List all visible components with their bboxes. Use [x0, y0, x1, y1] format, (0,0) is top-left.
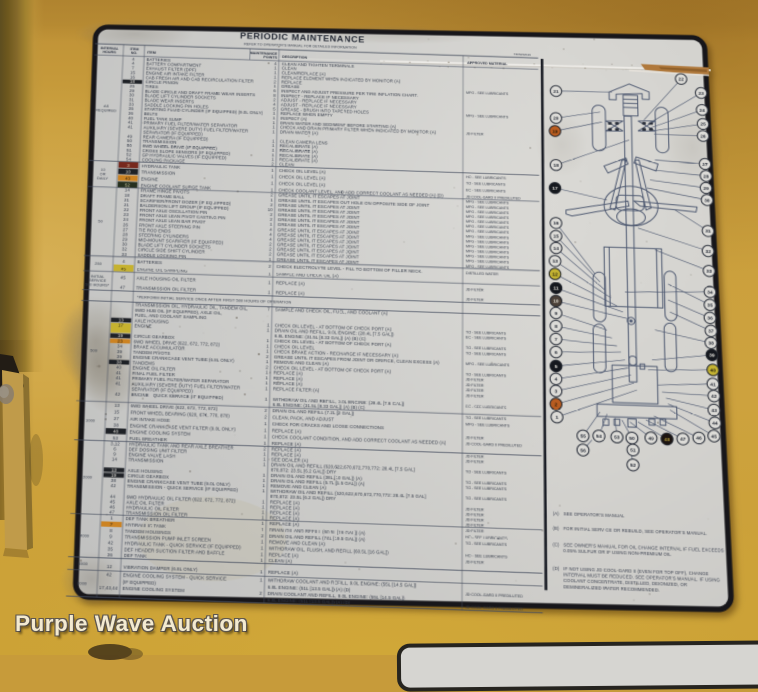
svg-text:1: 1	[268, 271, 271, 276]
svg-text:42: 42	[711, 393, 717, 399]
svg-text:28: 28	[703, 174, 709, 179]
svg-text:DRAIN WATER (A): DRAIN WATER (A)	[280, 129, 319, 135]
svg-text:TO - SEE LUBRICANTS: TO - SEE LUBRICANTS	[466, 416, 508, 422]
svg-text:1: 1	[267, 328, 270, 333]
svg-text:32: 32	[705, 249, 711, 254]
svg-text:CLEAN (A): CLEAN (A)	[268, 558, 292, 564]
svg-text:ENGINE - QUICK SERVICE (IF EQU: ENGINE - QUICK SERVICE (IF EQUIPPED)	[131, 392, 224, 401]
svg-text:1000: 1000	[86, 419, 95, 424]
svg-text:500 HOURS*: 500 HOURS*	[85, 283, 110, 288]
svg-text:1: 1	[261, 539, 264, 545]
svg-text:38: 38	[113, 422, 119, 428]
svg-text:5: 5	[555, 364, 558, 369]
svg-text:23: 23	[698, 91, 704, 96]
svg-text:TO - SEE LUBRICANTS: TO - SEE LUBRICANTS	[466, 182, 506, 187]
svg-text:(A): (A)	[553, 510, 560, 516]
svg-text:2: 2	[268, 263, 271, 268]
svg-text:1: 1	[260, 558, 263, 564]
svg-text:33: 33	[706, 269, 712, 274]
svg-text:13: 13	[552, 259, 558, 264]
svg-text:26: 26	[700, 134, 706, 139]
svg-text:APPROVED MATERIAL: APPROVED MATERIAL	[467, 61, 508, 66]
svg-text:36: 36	[707, 315, 713, 320]
svg-text:22: 22	[678, 77, 684, 82]
svg-text:1: 1	[265, 396, 268, 401]
svg-text:JD FILTER: JD FILTER	[466, 383, 485, 388]
svg-text:14: 14	[553, 246, 559, 251]
svg-text:DEF TANK: DEF TANK	[124, 553, 147, 559]
svg-text:ENGINE COOLING SYSTEM: ENGINE COOLING SYSTEM	[122, 585, 185, 593]
svg-text:12: 12	[107, 564, 113, 570]
svg-text:49: 49	[648, 435, 654, 441]
svg-text:VIBRATION DAMPER (6.8L ONLY): VIBRATION DAMPER (6.8L ONLY)	[123, 564, 198, 572]
svg-text:10: 10	[553, 298, 559, 303]
svg-text:25: 25	[700, 122, 706, 127]
svg-text:1: 1	[261, 527, 264, 533]
svg-text:24: 24	[699, 108, 705, 113]
svg-text:SAMPLE AND CHECK OIL, FUEL, AN: SAMPLE AND CHECK OIL, FUEL, AND COOLANT …	[275, 307, 388, 316]
svg-text:(B): (B)	[553, 525, 560, 531]
svg-text:3: 3	[555, 389, 558, 394]
svg-text:45: 45	[121, 266, 127, 271]
svg-text:2: 2	[259, 590, 263, 596]
svg-text:JD FILTER: JD FILTER	[465, 560, 484, 565]
svg-text:(D): (D)	[553, 565, 560, 571]
svg-text:13: 13	[114, 403, 120, 409]
svg-text:31: 31	[705, 229, 711, 234]
svg-text:54: 54	[596, 433, 602, 439]
svg-text:JD FILTER: JD FILTER	[465, 454, 484, 459]
svg-text:17: 17	[118, 323, 124, 328]
svg-text:56: 56	[580, 447, 586, 453]
svg-text:15: 15	[114, 409, 120, 415]
svg-text:JD FILTER: JD FILTER	[465, 435, 484, 440]
svg-text:ITEM: ITEM	[147, 50, 156, 54]
svg-text:250: 250	[95, 262, 102, 266]
svg-text:1: 1	[261, 515, 264, 521]
svg-text:REPLACE (A): REPLACE (A)	[276, 280, 305, 286]
svg-text:JD FILTER: JD FILTER	[466, 393, 485, 398]
svg-text:16: 16	[553, 221, 559, 226]
svg-text:55: 55	[580, 433, 586, 439]
svg-text:9: 9	[555, 311, 558, 316]
svg-text:2: 2	[271, 161, 274, 166]
svg-text:SEE OPERATOR’S MANUAL: SEE OPERATOR’S MANUAL	[563, 511, 625, 519]
svg-text:12: 12	[552, 272, 558, 277]
svg-text:1: 1	[272, 129, 275, 134]
svg-text:2000: 2000	[83, 475, 92, 480]
svg-text:ENGINE: ENGINE	[141, 176, 159, 182]
svg-text:50: 50	[98, 220, 103, 224]
svg-text:37: 37	[708, 328, 714, 333]
svg-text:15: 15	[553, 234, 559, 239]
svg-text:40: 40	[710, 367, 716, 373]
svg-text:1: 1	[261, 545, 264, 551]
svg-text:2: 2	[264, 408, 267, 413]
svg-text:53: 53	[614, 434, 620, 440]
svg-text:42: 42	[115, 391, 121, 397]
svg-text:54: 54	[126, 157, 132, 162]
svg-text:T4DW32K19: T4DW32K19	[514, 52, 532, 56]
svg-text:1: 1	[261, 521, 264, 527]
svg-text:NO.: NO.	[131, 51, 138, 55]
svg-text:14: 14	[112, 456, 118, 462]
svg-text:47: 47	[109, 509, 115, 515]
svg-text:TO - SEE LUBRICANTS: TO - SEE LUBRICANTS	[465, 486, 507, 492]
svg-text:ENGINE: ENGINE	[134, 323, 152, 329]
svg-text:REPLACE FILTER (A): REPLACE FILTER (A)	[273, 386, 320, 393]
svg-text:BATTERIES: BATTERIES	[137, 259, 162, 265]
svg-text:JD FILTER: JD FILTER	[466, 388, 485, 393]
svg-text:43: 43	[125, 176, 131, 181]
svg-text:JD FILTER: JD FILTER	[465, 459, 484, 464]
svg-text:27: 27	[702, 162, 708, 167]
svg-text:1: 1	[260, 577, 264, 583]
svg-text:TO - SEE LUBRICANTS: TO - SEE LUBRICANTS	[465, 496, 507, 502]
svg-text:6: 6	[555, 350, 558, 355]
svg-text:MPG - SEE LUBRICANTS: MPG - SEE LUBRICANTS	[466, 114, 509, 119]
svg-text:51: 51	[630, 447, 636, 453]
svg-text:50: 50	[629, 435, 635, 441]
svg-text:DAILY: DAILY	[97, 176, 109, 180]
svg-text:10: 10	[125, 169, 131, 174]
svg-text:30: 30	[704, 198, 710, 203]
svg-text:2: 2	[261, 533, 264, 539]
svg-text:42: 42	[108, 540, 114, 546]
svg-text:TO - SEE LUBRICANTS: TO - SEE LUBRICANTS	[466, 351, 507, 357]
svg-text:8: 8	[555, 324, 558, 329]
svg-text:EO - SEE LUBRICANTS: EO - SEE LUBRICANTS	[466, 188, 507, 193]
svg-text:1: 1	[260, 551, 263, 557]
svg-text:JD FILTER: JD FILTER	[466, 297, 485, 302]
svg-text:(C): (C)	[553, 541, 560, 547]
svg-text:1: 1	[271, 168, 274, 173]
svg-text:47: 47	[120, 285, 126, 290]
svg-text:1: 1	[262, 488, 265, 494]
svg-text:JD COOL-GARD II PREDILUTED: JD COOL-GARD II PREDILUTED	[465, 592, 523, 599]
svg-text:1: 1	[264, 434, 267, 439]
svg-text:36: 36	[107, 552, 113, 558]
svg-text:1: 1	[271, 174, 274, 179]
svg-text:1: 1	[265, 386, 268, 391]
svg-text:CHECK OIL LEVEL (A): CHECK OIL LEVEL (A)	[279, 168, 326, 175]
svg-text:DISTILLED WATER: DISTILLED WATER	[466, 271, 499, 276]
svg-text:17: 17	[552, 186, 558, 191]
svg-text:REPLACE (A): REPLACE (A)	[272, 428, 302, 434]
svg-text:42: 42	[110, 483, 116, 489]
svg-text:TRANSMISSION: TRANSMISSION	[128, 457, 164, 464]
svg-text:11: 11	[553, 286, 559, 291]
svg-text:EO - SEE LUBRICANTS: EO - SEE LUBRICANTS	[466, 335, 507, 341]
svg-text:HO - SEE LUBRICANTS: HO - SEE LUBRICANTS	[466, 175, 507, 180]
svg-text:20: 20	[553, 116, 559, 121]
svg-text:MPG - SEE LUBRICANTS: MPG - SEE LUBRICANTS	[466, 422, 511, 428]
svg-text:7: 7	[555, 337, 558, 342]
svg-text:4: 4	[122, 259, 125, 264]
svg-text:1: 1	[269, 257, 272, 262]
svg-text:33: 33	[121, 252, 127, 257]
svg-text:HO - SEE LUBRICANTS: HO - SEE LUBRICANTS	[465, 553, 508, 559]
svg-text:JD FILTER: JD FILTER	[465, 512, 484, 517]
svg-text:2: 2	[264, 414, 267, 419]
svg-text:REQUIRED: REQUIRED	[96, 108, 117, 113]
svg-text:6000: 6000	[77, 581, 87, 586]
svg-text:TO - SEE LUBRICANTS: TO - SEE LUBRICANTS	[465, 470, 507, 476]
svg-text:1: 1	[268, 280, 271, 285]
svg-text:TO - SEE LUBRICANTS: TO - SEE LUBRICANTS	[465, 541, 507, 547]
svg-text:TRANSMISSION OIL FILTER: TRANSMISSION OIL FILTER	[136, 285, 196, 292]
svg-text:19: 19	[552, 129, 558, 134]
svg-text:JD COOL-GARD II PREDILUTED: JD COOL-GARD II PREDILUTED	[465, 442, 522, 448]
svg-text:21: 21	[553, 89, 559, 94]
svg-text:1: 1	[268, 290, 271, 295]
svg-text:POINTS: POINTS	[263, 55, 277, 59]
svg-text:38: 38	[708, 340, 714, 345]
svg-text:48: 48	[113, 429, 119, 435]
svg-text:4500: 4500	[78, 561, 88, 566]
svg-text:45: 45	[711, 433, 717, 439]
svg-text:1: 1	[263, 462, 266, 468]
svg-text:JD FILTER: JD FILTER	[466, 378, 485, 383]
svg-text:34: 34	[707, 290, 713, 295]
svg-text:4000: 4000	[80, 533, 90, 538]
svg-text:MPG - SEE LUBRICANTS: MPG - SEE LUBRICANTS	[466, 362, 511, 368]
svg-text:7: 7	[267, 307, 270, 312]
svg-text:(IF EQUIPPED): (IF EQUIPPED)	[122, 579, 156, 586]
svg-text:JD FILTER: JD FILTER	[466, 132, 484, 137]
svg-text:27: 27	[114, 416, 120, 422]
svg-text:EO - SEE LUBRICANTS: EO - SEE LUBRICANTS	[466, 404, 508, 410]
svg-text:1: 1	[271, 181, 274, 186]
svg-text:52: 52	[630, 462, 636, 468]
svg-text:1: 1	[556, 415, 559, 420]
svg-text:REPLACE (A): REPLACE (A)	[268, 569, 299, 576]
svg-text:HOURS: HOURS	[103, 50, 117, 54]
svg-text:JD FILTER: JD FILTER	[465, 507, 484, 512]
svg-text:DESCRIPTION: DESCRIPTION	[282, 55, 308, 60]
svg-text:HO - SEE LUBRICANTS: HO - SEE LUBRICANTS	[465, 535, 508, 541]
svg-text:TRANSMISSION: TRANSMISSION	[141, 170, 175, 176]
svg-text:43: 43	[711, 408, 717, 414]
svg-text:29: 29	[703, 186, 709, 191]
svg-text:1: 1	[110, 515, 114, 521]
svg-text:47: 47	[680, 436, 686, 442]
svg-text:CLEAN: CLEAN	[279, 162, 294, 168]
svg-text:35: 35	[107, 546, 113, 552]
svg-text:1: 1	[264, 427, 267, 432]
svg-text:JD FILTER: JD FILTER	[466, 288, 485, 293]
svg-text:46: 46	[696, 435, 702, 441]
svg-text:JD FILTER: JD FILTER	[465, 529, 484, 534]
svg-text:500: 500	[90, 349, 97, 353]
svg-text:42: 42	[106, 572, 112, 578]
svg-text:HYDRAULIC TANK: HYDRAULIC TANK	[141, 163, 180, 169]
svg-text:REPLACE (A): REPLACE (A)	[276, 290, 305, 296]
svg-text:4: 4	[555, 376, 558, 381]
svg-text:1: 1	[260, 569, 264, 575]
svg-text:AXLE HOUSING OIL FILTER: AXLE HOUSING OIL FILTER	[136, 276, 196, 283]
svg-text:18: 18	[553, 163, 559, 168]
svg-text:17,43,44: 17,43,44	[99, 585, 119, 591]
svg-text:41: 41	[128, 124, 134, 129]
svg-text:MPG - SEE LUBRICANTS: MPG - SEE LUBRICANTS	[466, 91, 509, 96]
svg-text:45: 45	[120, 275, 126, 280]
svg-text:2: 2	[555, 402, 558, 407]
svg-text:39: 39	[709, 353, 715, 358]
svg-text:CHECK OIL LEVEL (A): CHECK OIL LEVEL (A)	[279, 174, 326, 181]
svg-text:FOR INITIAL SERVICE OR REBUILD: FOR INITIAL SERVICE OR REBUILD, SEE OPER…	[563, 526, 707, 537]
svg-text:9: 9	[109, 534, 113, 540]
svg-text:STARTING FLUID CYLINDER (IF EQ: STARTING FLUID CYLINDER (IF EQUIPPED) (9…	[144, 107, 264, 116]
svg-text:41: 41	[710, 381, 716, 387]
svg-text:48: 48	[664, 436, 670, 442]
svg-text:35: 35	[707, 302, 713, 307]
svg-text:1: 1	[264, 421, 267, 426]
svg-text:JD FILTER: JD FILTER	[465, 518, 484, 523]
svg-text:41: 41	[115, 380, 121, 386]
svg-text:8: 8	[110, 528, 114, 534]
svg-text:CHECK OIL LEVEL (A): CHECK OIL LEVEL (A)	[279, 181, 326, 188]
svg-text:44: 44	[712, 420, 718, 426]
